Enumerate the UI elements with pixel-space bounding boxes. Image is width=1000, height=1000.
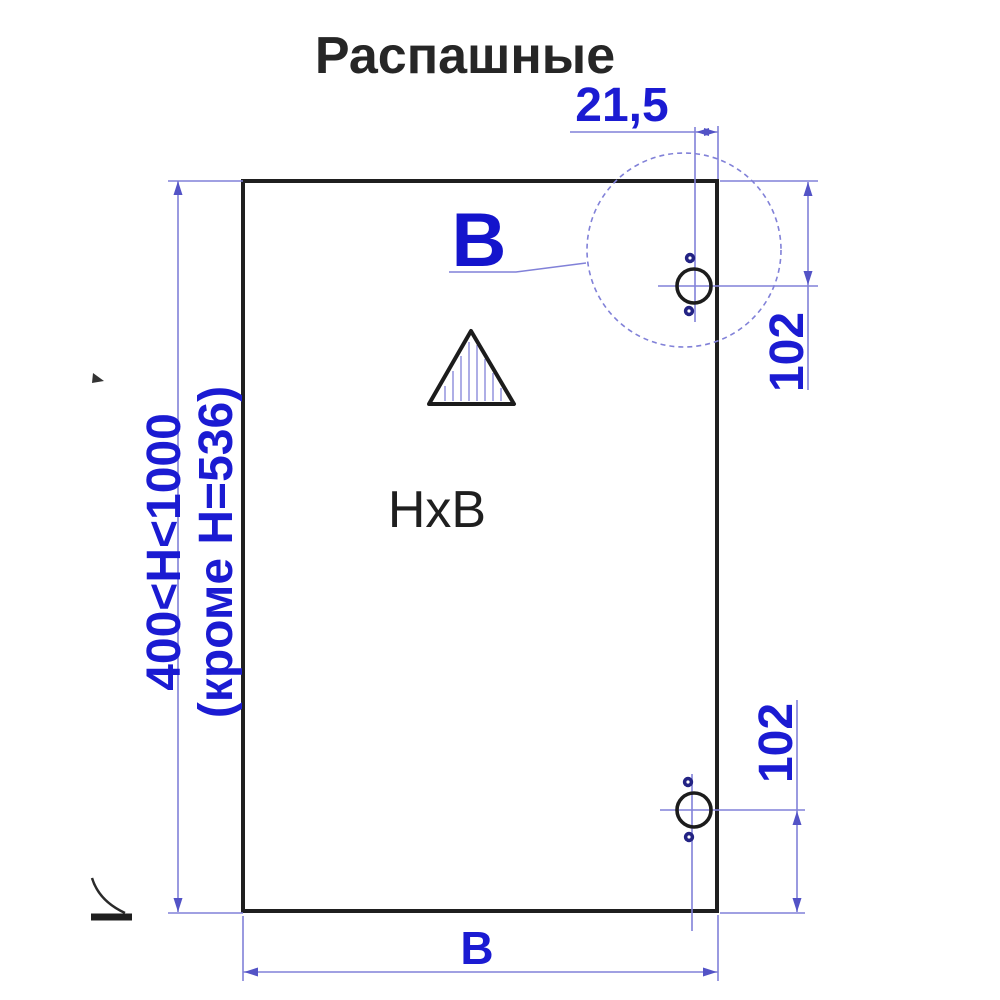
door-panel-outline [243,181,717,911]
screw-dot-core [688,256,691,259]
artifact-curve [92,878,125,913]
height-dimension: 400<H<1000 (кроме H=536) [138,181,243,913]
arrow-right-icon [703,968,717,977]
door-panel-rect [243,181,717,911]
hinge-edge-offset-text: 21,5 [575,79,668,132]
screw-dot-core [687,309,690,312]
detail-view-label: B [452,198,507,283]
width-dim-text: B [460,922,493,974]
hinge-bottom-dimension: 102 [720,700,805,913]
height-range-text: 400<H<1000 [138,413,191,691]
arrow-down-icon [174,898,183,912]
hinge-bottom-distance-text: 102 [750,703,803,783]
arrow-up-icon [793,811,802,825]
hinge-top-distance-text: 102 [761,312,814,392]
width-dimension: B [243,915,718,981]
drawing-page: Распашные 400<H<1000 (кроме H=536) B 21,… [0,0,1000,1000]
screw-dot-core [686,780,689,783]
artifact-wedge [92,373,104,383]
arrow-up-icon [174,181,183,195]
edge-artifact-mid [92,373,104,383]
technical-drawing: Распашные 400<H<1000 (кроме H=536) B 21,… [0,0,1000,1000]
drawing-title: Распашные [315,27,615,85]
screw-dot-core [687,835,690,838]
arrow-left-icon [244,968,258,977]
arrow-right-icon [704,128,717,136]
arrow-down-icon [793,898,802,912]
edge-artifact-bottom [91,878,132,917]
arrow-down-icon [804,271,813,285]
arrow-up-icon [804,182,813,196]
height-exception-text: (кроме H=536) [190,386,243,718]
panel-size-label: HxB [388,481,486,539]
